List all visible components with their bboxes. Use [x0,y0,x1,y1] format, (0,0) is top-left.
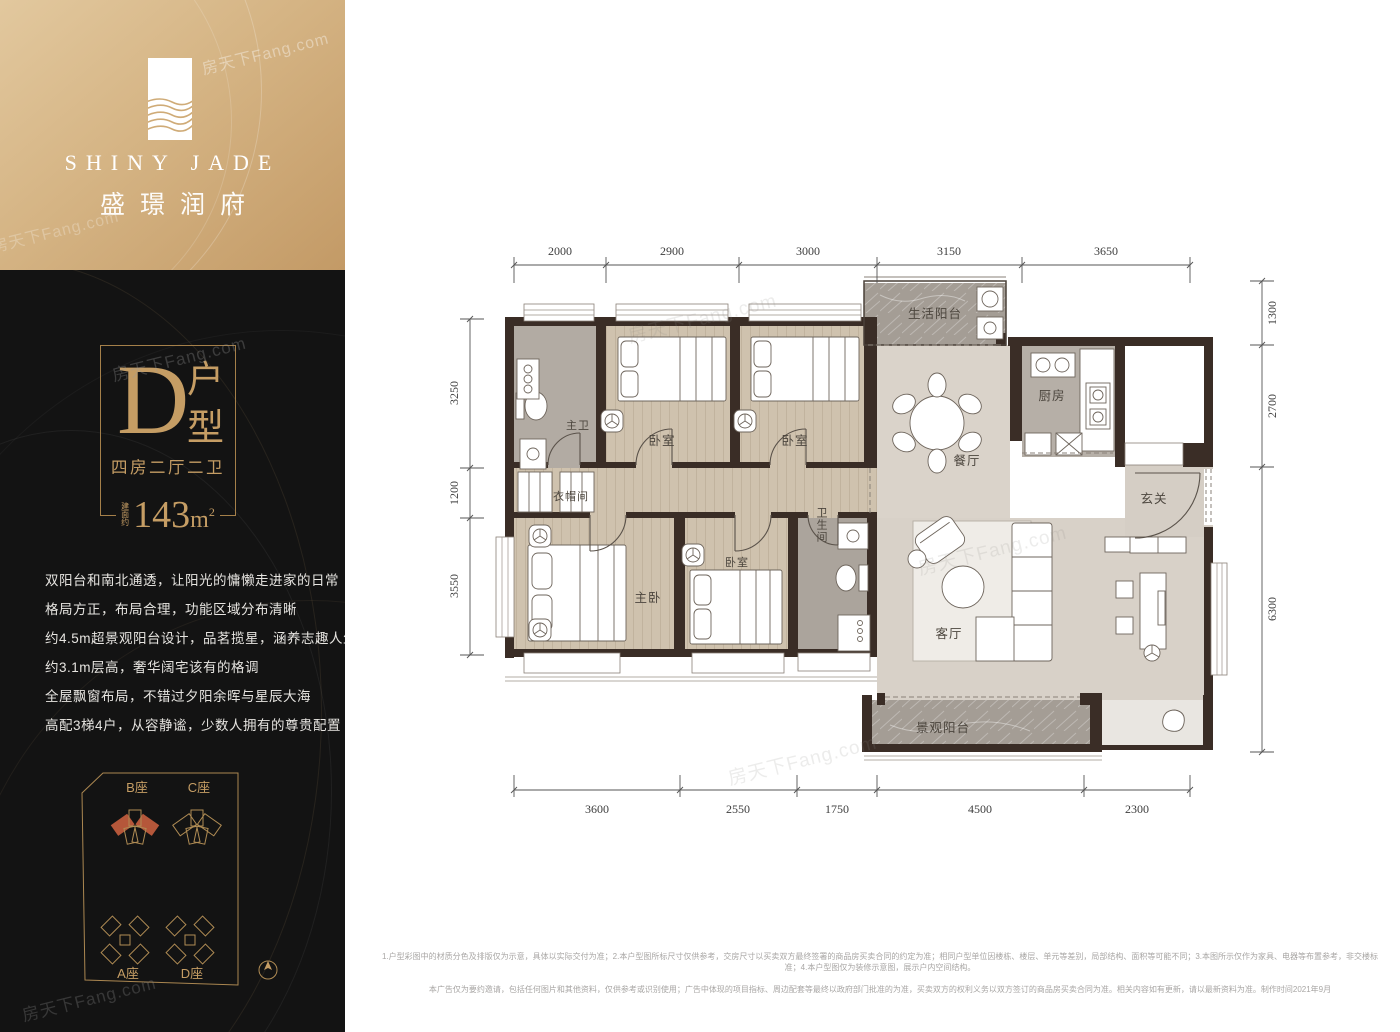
dim-bottom-3: 1750 [825,802,849,816]
dim-left-2: 1200 [447,481,461,505]
watermark: 房天下Fang.com [726,732,879,790]
plant [1163,710,1185,731]
dim-bottom-1: 3600 [585,802,609,816]
left-ticks [460,316,484,658]
dim-bottom-5: 2300 [1125,802,1149,816]
unit-type-box: D 户 型 四房二厅二卫 建面约 143 m 2 [100,345,236,516]
room-label-cloakroom: 衣帽间 [553,489,589,503]
unit-type-char-2: 型 [187,408,227,448]
disclaimer-line-2: 本广告仅为要约邀请，包括任何图片和其他资料，仅供参考或识别使用；广告中体现的项目… [375,984,1385,995]
dim-top-2: 2900 [660,244,684,258]
description-line: 双阳台和南北通透，让阳光的慵懒走进家的日常 [45,566,325,595]
description-line: 全屋飘窗布局，不错过夕阳余晖与星辰大海 [45,682,325,711]
dim-right-2: 2700 [1265,394,1279,418]
floorplan-drawing: 生活阳台 厨房 餐厅 玄关 主卫 卧室 卧室 衣帽间 主卧 卧室 卫生间 客厅 … [440,225,1400,825]
description-line: 约3.1m层高，奢华阔宅该有的格调 [45,653,325,682]
area-label: 建面约 [121,503,131,527]
unit-area: 建面约 143 m 2 [101,498,235,532]
room-label-dining: 餐厅 [953,453,980,468]
building-d-label: D座 [181,966,203,981]
description-line: 格局方正，布局合理，功能区域分布清晰 [45,595,325,624]
room-label-master-bath: 主卫 [566,419,590,432]
building-b [111,810,159,844]
bed [690,570,782,644]
building-a-label: A座 [117,966,139,981]
description-line: 约4.5m超景观阳台设计，品茗揽星，涵养志趣人生 [45,624,325,653]
dim-right-3: 6300 [1265,597,1279,621]
dim-top-5: 3650 [1094,244,1118,258]
building-a [101,916,149,964]
brand-name-cn: 盛璟润府 [0,185,345,221]
entry-opening [1204,469,1213,525]
dim-top-1: 2000 [548,244,572,258]
poster-page: SHINY JADE 盛璟润府 房天下Fang.com 房天下Fang.com … [0,0,1400,1032]
bathroom-fixtures [836,523,870,651]
room-label-master-bedroom: 主卧 [634,591,661,605]
room-label-bedroom-a: 卧室 [648,433,675,448]
dim-left-3: 3550 [447,574,461,598]
building-c-label: C座 [188,780,210,795]
room-label-kitchen: 厨房 [1038,388,1065,403]
bed [751,337,859,401]
entry-cabinet [1125,443,1183,465]
area-number: 143 [133,498,190,532]
left-panel: SHINY JADE 盛璟润府 房天下Fang.com 房天下Fang.com … [0,0,345,1032]
dim-bottom-4: 4500 [968,802,992,816]
dim-top-4: 3150 [937,244,961,258]
brand-header: SHINY JADE 盛璟润府 房天下Fang.com 房天下Fang.com [0,0,345,270]
bottom-ticks [511,775,1193,797]
dim-right-1: 1300 [1265,301,1279,325]
unit-layout: 四房二厅二卫 [101,454,235,478]
unit-letter: D [117,352,189,448]
room-label-bathroom: 卫生间 [815,507,828,543]
dim-bottom-2: 2550 [726,802,750,816]
compass-icon [259,961,277,979]
room-label-bedroom-b: 卧室 [781,433,808,448]
room-label-bedroom-c: 卧室 [725,555,749,569]
shoe-cabinet [1130,537,1186,553]
top-ticks [511,257,1193,283]
disclaimer: 1.户型彩图中的材质分色及排版仅为示意，具体以实际交付为准；2.本户型图所标尺寸… [375,951,1385,995]
dim-left-1: 3250 [447,381,461,405]
floorplan-area: 生活阳台 厨房 餐厅 玄关 主卫 卧室 卧室 衣帽间 主卧 卧室 卫生间 客厅 … [345,0,1400,1032]
unit-type-char-1: 户 [187,360,227,400]
room-label-service-balcony: 生活阳台 [908,306,962,321]
room-label-living: 客厅 [935,626,962,641]
unit-description: 双阳台和南北通透，让阳光的慵懒走进家的日常 格局方正，布局合理，功能区域分布清晰… [45,566,325,740]
contour-line [0,0,262,270]
site-plan: B座 C座 A座 D座 [62,762,292,1012]
building-c [173,810,221,844]
area-exponent: 2 [209,506,215,518]
site-boundary [82,773,238,985]
watermark: 房天下Fang.com [199,25,331,80]
room-label-entry: 玄关 [1140,491,1167,506]
area-unit: m [190,508,209,532]
disclaimer-line-1: 1.户型彩图中的材质分色及排版仅为示意，具体以实际交付为准；2.本户型图所标尺寸… [375,951,1385,973]
description-line: 高配3梯4户，从容静谧，少数人拥有的尊贵配置 [45,711,325,740]
building-b-label: B座 [126,780,148,795]
contour-line [0,0,232,270]
brand-logo [148,58,192,140]
dim-top-3: 3000 [796,244,820,258]
brand-name-en: SHINY JADE [0,150,345,176]
room-label-view-balcony: 景观阳台 [916,720,970,735]
building-d [166,916,214,964]
